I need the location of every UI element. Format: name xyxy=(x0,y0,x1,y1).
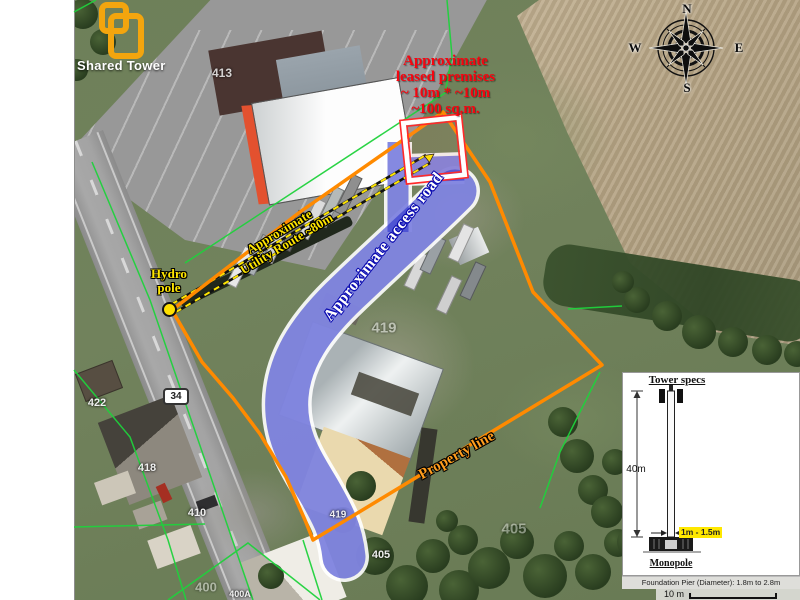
compass-north-label: N xyxy=(682,1,691,17)
map-scale: 10 m xyxy=(656,589,800,600)
compass-south-label: S xyxy=(683,80,690,96)
tree-icon xyxy=(718,327,748,357)
monopole-shaft xyxy=(668,391,675,537)
leased-premises-note-line: ~100 sq.m. xyxy=(363,101,528,117)
logo-wordmark: Shared Tower xyxy=(77,58,166,73)
tree-icon xyxy=(416,539,450,573)
shed xyxy=(132,500,167,529)
tree-icon xyxy=(258,563,284,589)
tree-icon xyxy=(386,565,428,600)
shared-tower-logo-icon xyxy=(108,13,144,59)
address-label: 405 xyxy=(501,521,526,538)
address-label: 419 xyxy=(330,510,347,521)
tower-specs-panel: Tower specs 40m 1m - 1.5m Monopole xyxy=(622,372,800,576)
address-label: 413 xyxy=(212,66,232,80)
tower-type-label: Monopole xyxy=(631,558,711,569)
building-422 xyxy=(75,360,123,402)
tree-icon xyxy=(554,531,584,561)
tower-height-label: 40m xyxy=(623,464,649,475)
tree-icon xyxy=(548,407,578,437)
leased-premises-note-line: leased premises xyxy=(363,69,528,85)
address-label: 422 xyxy=(88,397,106,409)
compass-east-label: E xyxy=(735,40,744,56)
tree-icon xyxy=(682,315,716,349)
leased-premises-note-line: ~ 10m * ~10m xyxy=(363,85,528,101)
site-plan-page: Shared Tower Approximate leased premises… xyxy=(0,0,800,600)
address-label: 400A xyxy=(229,589,251,599)
scale-bar-icon xyxy=(689,593,777,599)
address-label: 400 xyxy=(195,580,217,595)
leased-premises-note-line: Approximate xyxy=(363,53,528,69)
tree-icon xyxy=(74,0,98,29)
compass-west-label: W xyxy=(629,40,642,56)
tree-icon xyxy=(560,439,594,473)
scale-label: 10 m xyxy=(664,590,684,599)
tower-diameter-label: 1m - 1.5m xyxy=(679,527,722,538)
antenna-icon xyxy=(677,389,683,403)
tree-icon xyxy=(575,554,611,590)
address-label: 410 xyxy=(188,507,206,519)
address-label: 419 xyxy=(371,320,396,337)
address-label: 418 xyxy=(138,462,156,474)
antenna-icon xyxy=(659,389,665,403)
building-410 xyxy=(147,525,200,569)
tree-icon xyxy=(436,510,458,532)
tree-icon xyxy=(752,335,782,365)
tree-icon xyxy=(346,471,376,501)
hydro-pole-label-line: Hydro xyxy=(151,267,187,281)
tree-icon xyxy=(523,554,567,598)
tree-icon xyxy=(612,271,634,293)
address-label: 405 xyxy=(372,549,390,561)
hydro-pole-label: Hydro pole xyxy=(151,267,187,295)
tree-icon xyxy=(784,341,800,367)
hydro-pole-label-line: pole xyxy=(151,281,187,295)
leased-premises-note: Approximate leased premises ~ 10m * ~10m… xyxy=(363,53,528,117)
foundation-note: Foundation Pier (Diameter): 1.8m to 2.8m xyxy=(622,576,800,589)
route-34-shield: 34 xyxy=(163,388,189,405)
hydro-pole-marker xyxy=(162,302,177,317)
tree-icon xyxy=(591,496,623,528)
tree-icon xyxy=(652,301,682,331)
